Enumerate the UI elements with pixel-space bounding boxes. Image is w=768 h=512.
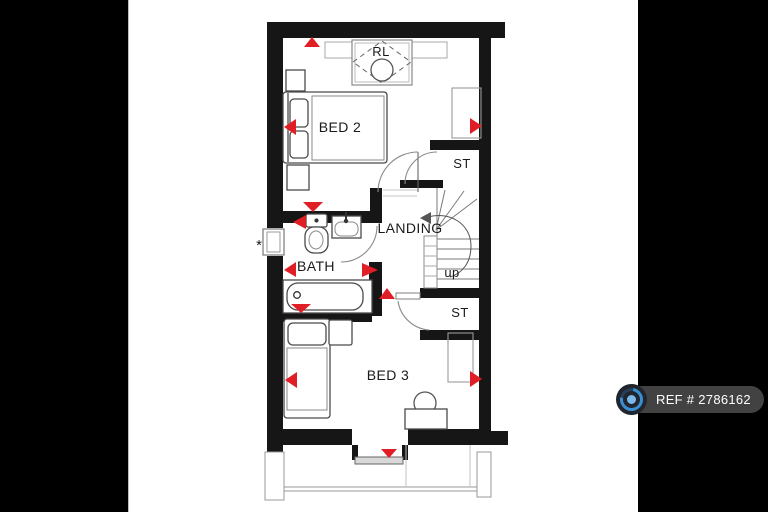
lower-floor-outline	[265, 445, 491, 500]
bath-window	[263, 229, 284, 255]
label-st-lower: ST	[451, 305, 468, 320]
wardrobe-bed3	[448, 333, 473, 382]
pillow-2	[290, 131, 308, 158]
arrow-down-bath-wall	[303, 202, 323, 212]
handrail	[424, 236, 437, 288]
bed3-door-arc	[398, 301, 429, 330]
st-upper-door-arc	[405, 152, 437, 184]
floorplan-drawing: RL BED 2 ST LANDING up BATH ST BED 3 *	[0, 0, 768, 512]
label-bed2: BED 2	[319, 119, 361, 135]
bedside-table-2	[287, 165, 309, 190]
arrow-up-top-wall	[304, 37, 320, 47]
ref-number-text: REF # 2786162	[656, 392, 751, 407]
basin-tap-dot	[344, 219, 348, 223]
label-rooflight: RL	[372, 44, 389, 59]
arrow-left-bath	[284, 262, 296, 277]
bedside-table-1	[286, 70, 305, 91]
ref-badge: REF # 2786162	[620, 386, 764, 413]
bed3-door-leaf	[396, 293, 420, 299]
wall-left-upper	[267, 38, 283, 230]
label-st-upper: ST	[453, 156, 470, 171]
pillow-3	[288, 323, 326, 345]
wall-st-lower-bottom	[420, 330, 491, 340]
desk	[405, 409, 447, 429]
wall-bottom-right	[408, 429, 487, 445]
label-landing: LANDING	[377, 220, 442, 236]
wall-bottom-left	[283, 429, 352, 445]
label-bath: BATH	[297, 258, 335, 274]
bed2-furniture	[283, 40, 481, 190]
wall-left-lower	[267, 254, 283, 452]
label-asterisk: *	[256, 237, 262, 254]
label-bed3: BED 3	[367, 367, 409, 383]
bay-left	[265, 452, 284, 500]
wall-top	[267, 22, 505, 38]
toilet-button	[315, 219, 319, 223]
wardrobe-bed2	[452, 88, 481, 138]
camera-360-icon	[616, 384, 647, 415]
wall-st-upper-bottom	[400, 180, 443, 188]
bed3-window	[355, 457, 403, 464]
bedside-table-3	[329, 320, 352, 345]
wall-stub-upper	[370, 188, 382, 223]
label-up: up	[444, 265, 459, 280]
wall-st-lower-top	[420, 288, 479, 298]
bay-right	[477, 452, 491, 497]
wall-st-upper-top	[430, 140, 479, 150]
camera-360-icon-dot	[627, 395, 636, 404]
screenshot-root: RL BED 2 ST LANDING up BATH ST BED 3 * R…	[0, 0, 768, 512]
wall-bottom-right-ext	[487, 431, 508, 445]
